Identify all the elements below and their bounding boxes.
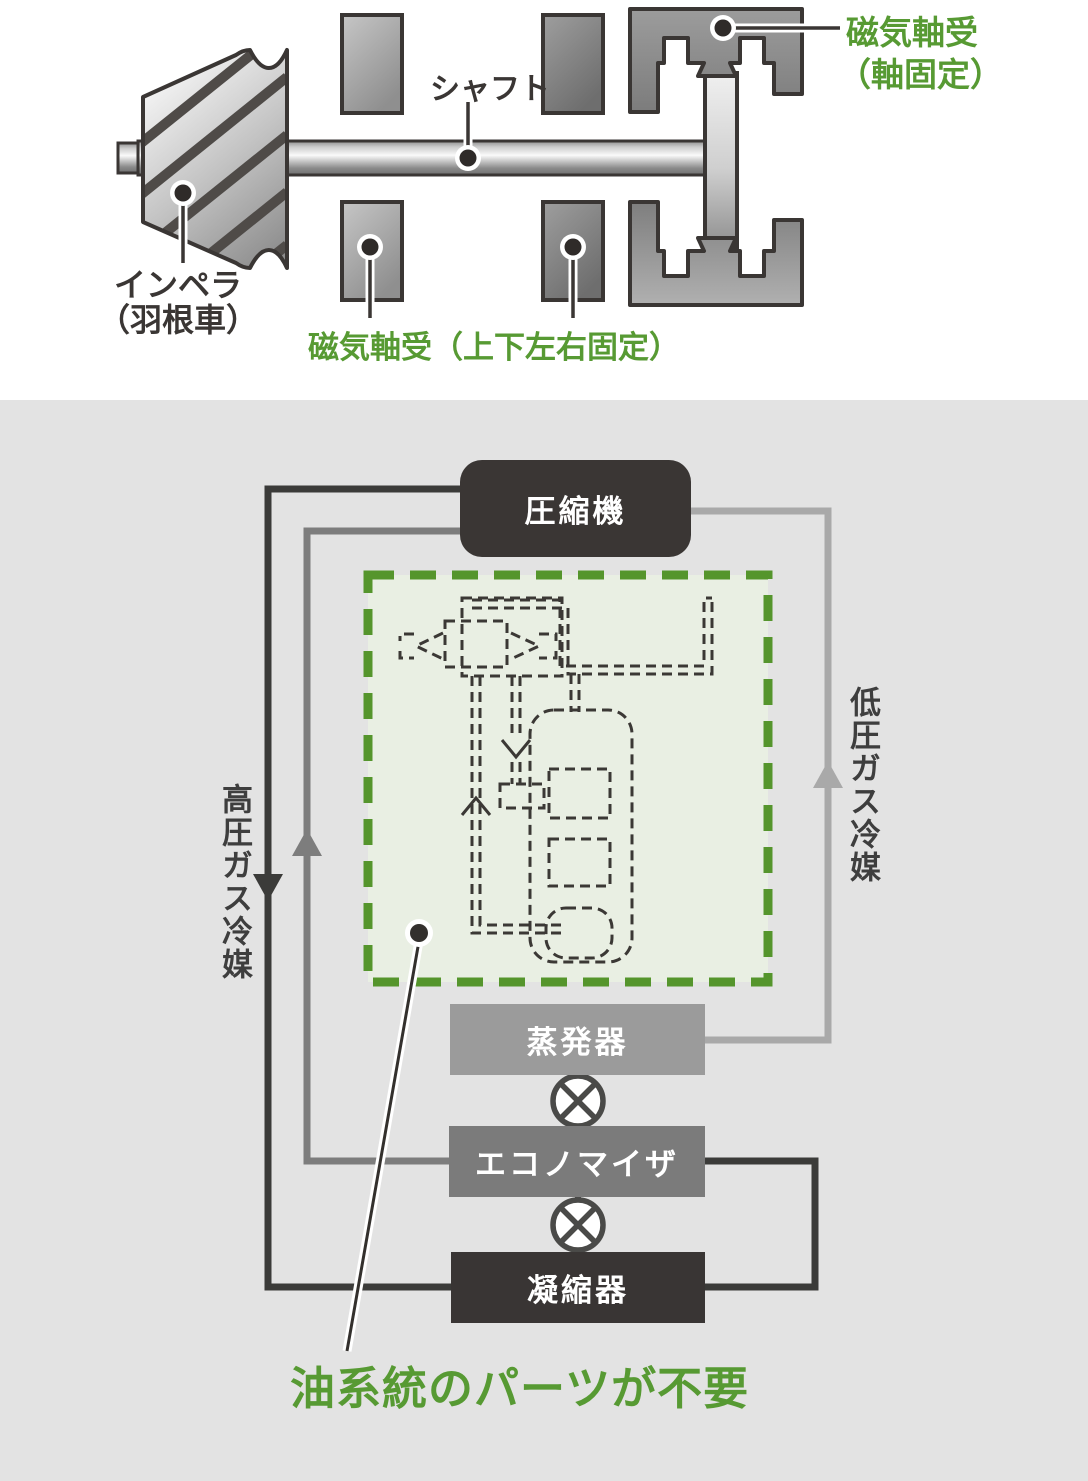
infographic: シャフト インペラ （羽根車） 磁気軸受（上下左右固定） 磁気軸受 （軸固定） … (0, 0, 1088, 1481)
axial-bearing-label-line2: （軸固定） (838, 55, 1003, 94)
axial-bearing-label-line1: 磁気軸受 (838, 12, 1003, 54)
radial-bearing-label: 磁気軸受（上下左右固定） (308, 322, 680, 367)
oil-system-box (368, 575, 768, 982)
oil-callout-label: 油系統のパーツが不要 (290, 1352, 749, 1417)
condenser-node: 凝縮器 (451, 1252, 705, 1323)
shaft-label: シャフト (430, 64, 550, 108)
economizer-label: エコノマイザ (475, 1139, 679, 1184)
compressor-node: 圧縮機 (460, 460, 691, 557)
impeller-label: インペラ （羽根車） (98, 268, 258, 338)
high-pressure-gas-label: 高圧ガス冷媒 (212, 783, 257, 973)
impeller-label-line2: （羽根車） (98, 303, 258, 338)
economizer-node: エコノマイザ (449, 1126, 705, 1197)
expansion-valve-icon (553, 1200, 603, 1250)
condenser-label: 凝縮器 (527, 1265, 629, 1310)
expansion-valve-icon (553, 1076, 603, 1126)
evaporator-label: 蒸発器 (527, 1017, 629, 1062)
low-pressure-gas-label: 低圧ガス冷媒 (840, 686, 885, 876)
thrust-disc (705, 73, 737, 247)
evaporator-node: 蒸発器 (450, 1004, 705, 1075)
compressor-label: 圧縮機 (525, 486, 627, 531)
axial-bearing-label: 磁気軸受 （軸固定） (838, 12, 1003, 96)
impeller-label-line1: インペラ (98, 268, 258, 303)
